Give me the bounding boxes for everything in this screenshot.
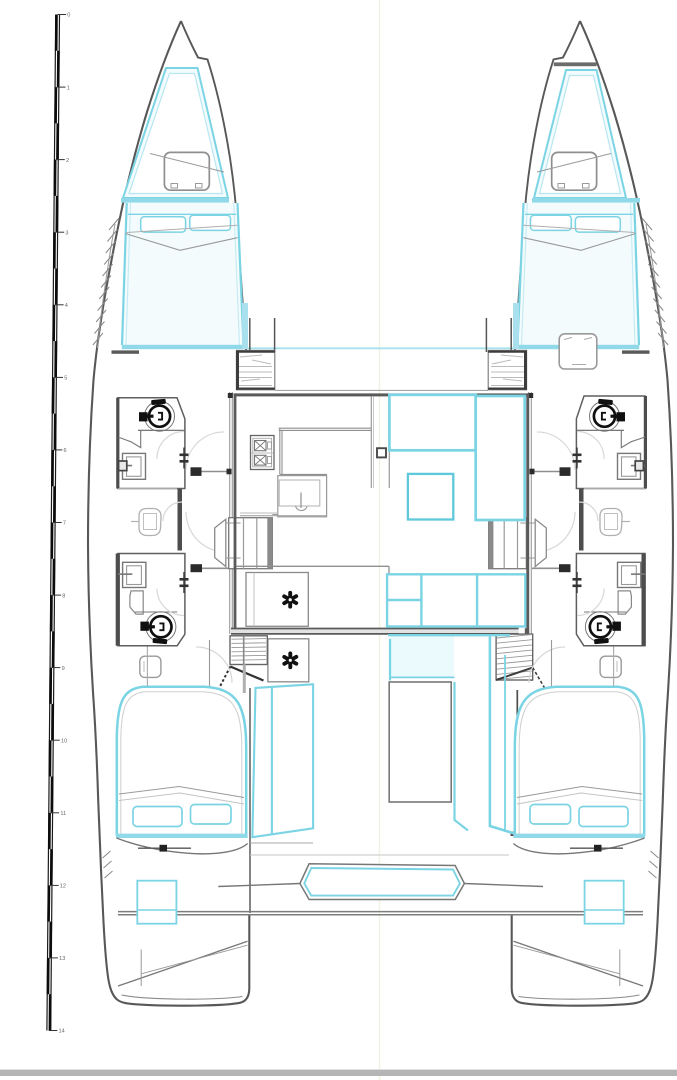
svg-text:2: 2 — [66, 158, 69, 164]
svg-text:3: 3 — [65, 230, 68, 236]
svg-text:14: 14 — [59, 1029, 65, 1035]
svg-text:0: 0 — [67, 13, 70, 19]
svg-text:1: 1 — [67, 85, 70, 91]
svg-text:9: 9 — [62, 666, 65, 672]
svg-text:10: 10 — [61, 738, 67, 744]
svg-text:11: 11 — [60, 811, 66, 817]
svg-text:13: 13 — [59, 956, 65, 962]
svg-text:12: 12 — [60, 884, 66, 890]
svg-text:7: 7 — [63, 521, 66, 527]
svg-text:6: 6 — [64, 448, 67, 454]
svg-text:8: 8 — [62, 593, 65, 599]
svg-text:5: 5 — [64, 376, 67, 382]
svg-text:4: 4 — [65, 303, 68, 309]
